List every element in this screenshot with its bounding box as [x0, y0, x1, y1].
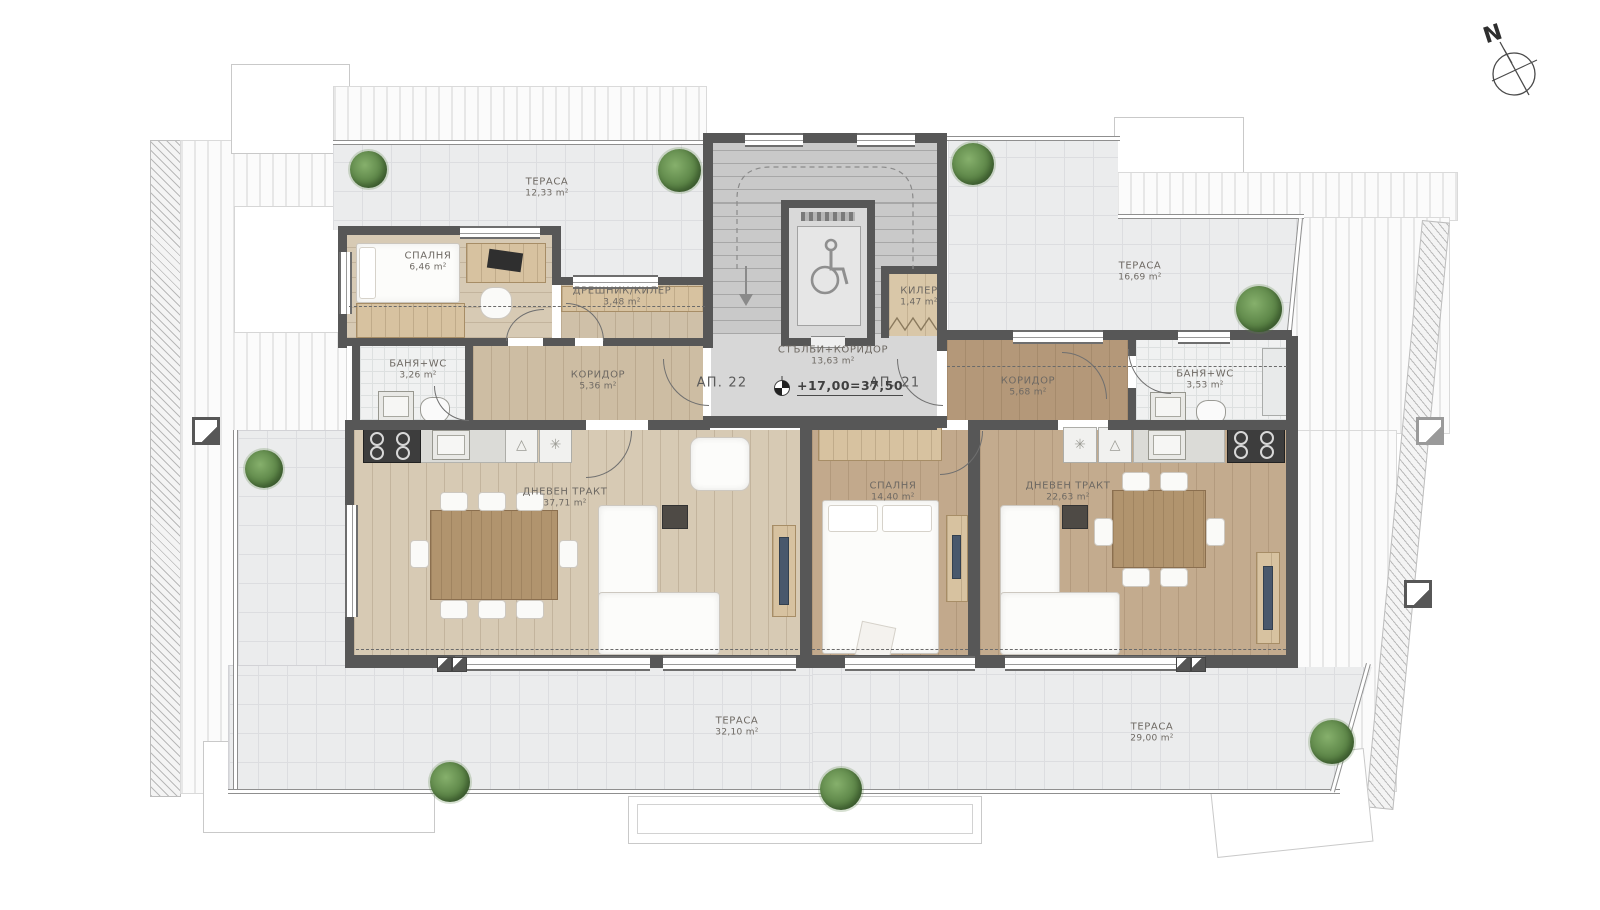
- wall: [800, 420, 812, 668]
- burner: [396, 446, 410, 460]
- wall: [345, 420, 586, 430]
- room-area: 32,10 m²: [715, 728, 758, 740]
- washer-icon-left: ✳: [539, 427, 572, 463]
- sofa-left-seat: [598, 592, 720, 655]
- sofa-right-seat: [1000, 592, 1120, 655]
- room-label-corridor-right: КОРИДОР 5,68 m²: [1001, 375, 1055, 400]
- sink-basin: [437, 435, 465, 455]
- window-bath-right: [1178, 330, 1230, 344]
- vent-marker: [1404, 580, 1432, 608]
- stair-arrow-stem: [745, 266, 747, 296]
- room-area: 5,36 m²: [571, 382, 625, 394]
- wall: [338, 338, 508, 346]
- dining-chair: [516, 600, 544, 619]
- washbasin-bowl: [383, 396, 409, 417]
- room-area: 14,40 m²: [870, 493, 917, 505]
- room-area: 29,00 m²: [1130, 734, 1173, 746]
- window-bedroom-right: [845, 656, 975, 671]
- stair-arrow-head: [739, 294, 753, 306]
- room-area: 3,53 m²: [1176, 381, 1234, 393]
- washer-icon-right: ✳: [1063, 427, 1097, 463]
- window-corridor-right: [1013, 330, 1103, 344]
- room-label-bath-left: БАНЯ+WC 3,26 m²: [389, 358, 447, 383]
- wall: [603, 338, 710, 346]
- side-table-left: [662, 505, 688, 529]
- room-name: ДНЕВЕН ТРАКТ: [1026, 480, 1111, 493]
- room-label-closet-core: КИЛЕР 1,47 m²: [900, 285, 937, 310]
- terrace-bottom-left-railing-side: [233, 430, 238, 791]
- wall: [1128, 388, 1136, 428]
- room-name: ТЕРАСА: [525, 176, 568, 189]
- plant: [430, 762, 470, 802]
- room-label-terrace-top-right: ТЕРАСА 16,69 m²: [1118, 260, 1161, 285]
- window-living-left-b: [663, 656, 796, 671]
- room-name: КИЛЕР: [900, 285, 937, 298]
- wall: [980, 420, 1058, 430]
- room-area: 16,69 m²: [1118, 273, 1161, 285]
- room-label-bedroom-left: СПАЛНЯ 6,46 m²: [405, 250, 452, 275]
- kitchen-sink-left: [432, 430, 470, 460]
- plant: [245, 450, 283, 488]
- room-name: ДНЕВЕН ТРАКТ: [523, 486, 608, 499]
- room-label-terrace-bottom-left: ТЕРАСА 32,10 m²: [715, 715, 758, 740]
- bed-right-pillow: [882, 505, 932, 532]
- closet-shelf-zigzag: [889, 310, 937, 334]
- dining-chair: [1122, 568, 1150, 587]
- window-living-left-side: [345, 505, 358, 617]
- wall: [703, 133, 713, 348]
- wall: [937, 133, 947, 333]
- terrace-bottom-right: [812, 667, 1372, 791]
- vent-marker: [192, 417, 220, 445]
- stove-left: [363, 427, 421, 463]
- door-threshold: [452, 657, 467, 672]
- dining-chair: [478, 600, 506, 619]
- room-area: 6,46 m²: [405, 263, 452, 275]
- roof-hatch-left: [150, 140, 181, 797]
- washbasin-bowl: [1155, 397, 1181, 417]
- armchair-left: [690, 437, 750, 491]
- window-bedroom-left-side: [339, 252, 352, 314]
- room-label-terrace-bottom-right: ТЕРАСА 29,00 m²: [1130, 721, 1173, 746]
- dining-chair: [1122, 472, 1150, 491]
- tv-bedroom-right: [952, 535, 961, 579]
- room-name: СПАЛНЯ: [870, 480, 917, 493]
- tv-left: [779, 537, 789, 605]
- window-living-right: [1005, 656, 1205, 671]
- apartment-label-22: АП. 22: [697, 376, 748, 393]
- room-name: БАНЯ+WC: [1176, 368, 1234, 381]
- room-name: ДРЕШНИК/КИЛЕР: [573, 285, 672, 298]
- dishwasher-icon-right: △: [1098, 427, 1132, 463]
- burner: [396, 432, 410, 446]
- dining-chair: [1094, 518, 1113, 546]
- terrace-top-left-railing: [333, 140, 705, 145]
- room-name: ТЕРАСА: [715, 715, 758, 728]
- room-label-bedroom-right: СПАЛНЯ 14,40 m²: [870, 480, 917, 505]
- plant: [820, 768, 862, 810]
- burner: [370, 446, 384, 460]
- door-threshold: [437, 657, 452, 672]
- door-threshold: [1191, 657, 1206, 672]
- wall: [648, 420, 710, 430]
- closet-wall-left: [881, 266, 889, 338]
- wardrobe-bedroom-left: [356, 303, 465, 338]
- dining-chair: [559, 540, 578, 568]
- side-table-right: [1062, 505, 1088, 529]
- burner: [1234, 431, 1248, 445]
- room-area: 5,68 m²: [1001, 388, 1055, 400]
- plant: [1236, 286, 1282, 332]
- room-label-dressing: ДРЕШНИК/КИЛЕР 3,48 m²: [573, 285, 672, 310]
- window-living-left-a: [455, 656, 650, 671]
- room-label-bath-right: БАНЯ+WC 3,53 m²: [1176, 368, 1234, 393]
- benchmark-icon: [772, 376, 792, 398]
- room-area: 12,33 m²: [525, 189, 568, 201]
- burner: [1260, 445, 1274, 459]
- door-threshold: [1176, 657, 1191, 672]
- room-name: КОРИДОР: [1001, 375, 1055, 388]
- dining-chair: [440, 600, 468, 619]
- canopy-inner-line: [637, 804, 973, 834]
- room-name: СПАЛНЯ: [405, 250, 452, 263]
- burner: [370, 432, 384, 446]
- bed-right-pillow: [828, 505, 878, 532]
- terrace-top-right-railing-a: [946, 136, 1120, 141]
- vent-marker: [1416, 417, 1444, 445]
- roof-ribbed-top: [333, 86, 707, 146]
- burner: [1260, 431, 1274, 445]
- room-name: ТЕРАСА: [1118, 260, 1161, 273]
- wheelchair-icon: [806, 236, 850, 298]
- room-area: 1,47 m²: [900, 298, 937, 310]
- desk-chair-left: [480, 287, 512, 319]
- dining-table-right: [1112, 490, 1206, 568]
- roof-box-top-right: [1114, 117, 1244, 176]
- dining-chair: [1206, 518, 1225, 546]
- dining-chair: [1160, 568, 1188, 587]
- room-area: 3,26 m²: [389, 371, 447, 383]
- tv-right: [1263, 566, 1273, 630]
- room-area: 22,63 m²: [1026, 493, 1111, 505]
- compass-north-icon: N: [1448, 18, 1568, 118]
- bed-left-pillow: [359, 247, 376, 299]
- room-area: 3,48 m²: [573, 298, 672, 310]
- dining-table-left: [430, 510, 558, 600]
- wall: [1286, 336, 1298, 668]
- terrace-bottom-right-railing: [812, 789, 1340, 794]
- roof-flat-left: [234, 206, 340, 333]
- room-label-living-right: ДНЕВЕН ТРАКТ 22,63 m²: [1026, 480, 1111, 505]
- wall: [940, 330, 1292, 340]
- floor-plan: △ ✳ ✳ △: [0, 0, 1600, 910]
- plant: [658, 149, 701, 192]
- elevation-marker: +17,00=37,50: [772, 376, 903, 398]
- stove-right: [1227, 425, 1285, 463]
- dining-chair: [1160, 472, 1188, 491]
- dining-chair: [410, 540, 429, 568]
- burner: [1234, 445, 1248, 459]
- sink-basin: [1153, 435, 1181, 455]
- room-label-corridor-left: КОРИДОР 5,36 m²: [571, 369, 625, 394]
- room-name: КОРИДОР: [571, 369, 625, 382]
- room-label-stairs-corridor: СТЪЛБИ+КОРИДОР 13,63 m²: [778, 344, 888, 369]
- slope-dashed-line: [356, 649, 798, 650]
- dining-chair: [440, 492, 468, 511]
- slope-dashed-line: [812, 649, 968, 650]
- plant: [952, 143, 994, 185]
- room-area: 37,71 m²: [523, 499, 608, 511]
- kitchen-sink-right: [1148, 430, 1186, 460]
- room-label-terrace-top-left: ТЕРАСА 12,33 m²: [525, 176, 568, 201]
- room-label-living-left: ДНЕВЕН ТРАКТ 37,71 m²: [523, 486, 608, 511]
- terrace-top-right-railing-b: [1118, 214, 1304, 219]
- wall: [352, 346, 360, 428]
- room-area: 13,63 m²: [778, 357, 888, 369]
- elevation-value: +17,00=37,50: [797, 378, 903, 396]
- dining-chair: [478, 492, 506, 511]
- washbasin-bath-right: [1150, 392, 1186, 422]
- dishwasher-icon-left: △: [505, 427, 538, 463]
- washbasin-bath-left: [378, 391, 414, 422]
- plant: [1310, 720, 1354, 764]
- room-name: БАНЯ+WC: [389, 358, 447, 371]
- room-name: СТЪЛБИ+КОРИДОР: [778, 344, 888, 357]
- wardrobe-bedroom-right: [818, 425, 942, 461]
- slope-dashed-line: [947, 366, 1287, 367]
- room-name: ТЕРАСА: [1130, 721, 1173, 734]
- window-bedroom-left: [460, 226, 540, 239]
- slope-dashed-line: [980, 649, 1286, 650]
- plant: [350, 151, 387, 188]
- terrace-bottom-left-railing: [228, 789, 814, 794]
- canopy-bottom: [628, 796, 982, 844]
- wall: [812, 420, 937, 430]
